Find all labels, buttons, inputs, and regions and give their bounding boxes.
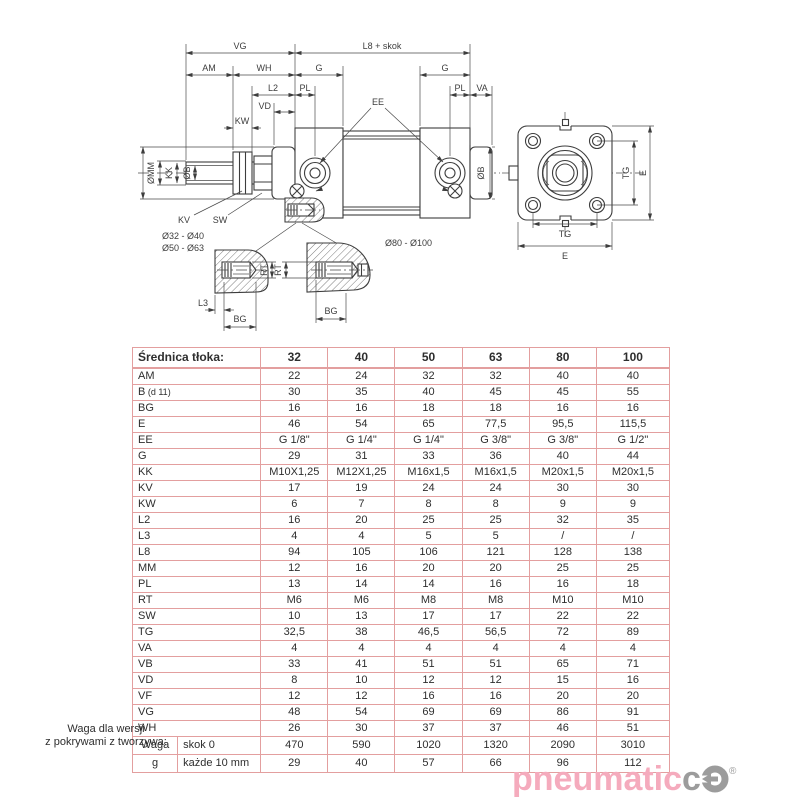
value-cell: M12X1,25 bbox=[328, 465, 395, 481]
value-cell: 46,5 bbox=[395, 625, 462, 641]
dims-table-body: AM222432324040B (d 11)303540454555BG1616… bbox=[133, 368, 670, 773]
row-label: G bbox=[133, 449, 261, 465]
table-row: VD81012121516 bbox=[133, 673, 670, 689]
value-cell: 6 bbox=[261, 497, 328, 513]
value-cell: M16x1,5 bbox=[395, 465, 462, 481]
dim-kw: KW bbox=[235, 116, 250, 126]
row-label: VG bbox=[133, 705, 261, 721]
value-cell: 89 bbox=[596, 625, 669, 641]
pneumatico-logo: pneumaticc® bbox=[512, 760, 792, 798]
dim-pl-front: PL bbox=[299, 83, 310, 93]
value-cell: 54 bbox=[328, 705, 395, 721]
dim-bg-small: BG bbox=[233, 314, 246, 324]
value-cell: 12 bbox=[261, 561, 328, 577]
value-cell: 1320 bbox=[462, 737, 529, 755]
logo-text-gray: c bbox=[682, 760, 701, 798]
datasheet-page: VG L8 + skok AM WH G G L2 PL PL VA VD KW… bbox=[0, 0, 800, 800]
value-cell: 15 bbox=[529, 673, 596, 689]
dim-ee: EE bbox=[372, 97, 384, 107]
value-cell: / bbox=[529, 529, 596, 545]
value-cell: 57 bbox=[395, 755, 462, 773]
value-cell: 13 bbox=[328, 609, 395, 625]
value-cell: 17 bbox=[395, 609, 462, 625]
value-cell: G 1/8" bbox=[261, 433, 328, 449]
value-cell: G 3/8" bbox=[462, 433, 529, 449]
value-cell: M8 bbox=[395, 593, 462, 609]
dim-l2: L2 bbox=[268, 83, 278, 93]
value-cell: 9 bbox=[596, 497, 669, 513]
value-cell: 9 bbox=[529, 497, 596, 513]
value-cell: 10 bbox=[328, 673, 395, 689]
value-cell: 40 bbox=[529, 368, 596, 385]
weight-sub-label: skok 0 bbox=[178, 737, 261, 755]
dim-tg-horizontal: TG bbox=[559, 229, 572, 239]
row-label: RT bbox=[133, 593, 261, 609]
cushion-screw-rear bbox=[448, 184, 462, 198]
value-cell: 16 bbox=[328, 561, 395, 577]
value-cell: 25 bbox=[395, 513, 462, 529]
value-cell: 48 bbox=[261, 705, 328, 721]
dim-tg-vertical: TG bbox=[621, 167, 631, 180]
value-cell: 13 bbox=[261, 577, 328, 593]
value-cell: 65 bbox=[395, 417, 462, 433]
value-cell: 30 bbox=[261, 385, 328, 401]
weight-sub-label: każde 10 mm bbox=[178, 755, 261, 773]
value-cell: 5 bbox=[462, 529, 529, 545]
value-cell: 7 bbox=[328, 497, 395, 513]
technical-drawing: VG L8 + skok AM WH G G L2 PL PL VA VD KW… bbox=[0, 0, 800, 345]
dim-vg: VG bbox=[233, 41, 246, 51]
value-cell: 138 bbox=[596, 545, 669, 561]
value-cell: 4 bbox=[261, 529, 328, 545]
detail-range-large: Ø80 - Ø100 bbox=[385, 238, 432, 248]
dim-am: AM bbox=[202, 63, 216, 73]
value-cell: M8 bbox=[462, 593, 529, 609]
value-cell: 10 bbox=[261, 609, 328, 625]
dim-dia-b-front: ØB bbox=[182, 166, 192, 179]
value-cell: 20 bbox=[529, 689, 596, 705]
dim-e-horizontal: E bbox=[562, 251, 568, 261]
table-row: TG32,53846,556,57289 bbox=[133, 625, 670, 641]
value-cell: 33 bbox=[261, 657, 328, 673]
value-cell: M6 bbox=[328, 593, 395, 609]
value-cell: 46 bbox=[529, 721, 596, 737]
dim-g-front: G bbox=[315, 63, 322, 73]
value-cell: M20x1,5 bbox=[596, 465, 669, 481]
table-row: EEG 1/8"G 1/4"G 1/4"G 3/8"G 3/8"G 1/2" bbox=[133, 433, 670, 449]
cushion-screw-front bbox=[290, 184, 304, 198]
value-cell: 40 bbox=[395, 385, 462, 401]
weight-caption: Waga dla wersji z pokrywami z tworzywa: bbox=[28, 723, 184, 749]
value-cell: 1020 bbox=[395, 737, 462, 755]
dim-g-rear: G bbox=[441, 63, 448, 73]
value-cell: 16 bbox=[462, 689, 529, 705]
value-cell: 5 bbox=[395, 529, 462, 545]
table-row: VG485469698691 bbox=[133, 705, 670, 721]
table-row: KW678899 bbox=[133, 497, 670, 513]
value-cell: M16x1,5 bbox=[462, 465, 529, 481]
value-cell: 45 bbox=[462, 385, 529, 401]
dim-kv: KV bbox=[178, 215, 190, 225]
value-cell: 51 bbox=[462, 657, 529, 673]
column-header: 32 bbox=[261, 348, 328, 369]
table-row: KKM10X1,25M12X1,25M16x1,5M16x1,5M20x1,5M… bbox=[133, 465, 670, 481]
row-label: MM bbox=[133, 561, 261, 577]
value-cell: 32 bbox=[462, 368, 529, 385]
value-cell: 8 bbox=[462, 497, 529, 513]
table-row: VF121216162020 bbox=[133, 689, 670, 705]
value-cell: 30 bbox=[596, 481, 669, 497]
value-cell: 29 bbox=[261, 755, 328, 773]
table-row: PL131414161618 bbox=[133, 577, 670, 593]
value-cell: 4 bbox=[328, 529, 395, 545]
value-cell: 36 bbox=[462, 449, 529, 465]
value-cell: M10X1,25 bbox=[261, 465, 328, 481]
value-cell: 4 bbox=[395, 641, 462, 657]
table-row: B (d 11)303540454555 bbox=[133, 385, 670, 401]
value-cell: 95,5 bbox=[529, 417, 596, 433]
logo-rotate-o-icon bbox=[701, 765, 729, 793]
value-cell: 22 bbox=[529, 609, 596, 625]
value-cell: 470 bbox=[261, 737, 328, 755]
value-cell: 40 bbox=[596, 368, 669, 385]
value-cell: 51 bbox=[395, 657, 462, 673]
value-cell: 24 bbox=[395, 481, 462, 497]
registered-mark: ® bbox=[729, 766, 736, 777]
value-cell: 14 bbox=[328, 577, 395, 593]
value-cell: 30 bbox=[328, 721, 395, 737]
value-cell: 12 bbox=[395, 673, 462, 689]
value-cell: 38 bbox=[328, 625, 395, 641]
value-cell: M6 bbox=[261, 593, 328, 609]
value-cell: 12 bbox=[462, 673, 529, 689]
plug-section bbox=[285, 198, 324, 222]
dim-dia-mm: ØMM bbox=[146, 162, 156, 184]
dim-kk: KK bbox=[164, 167, 174, 179]
value-cell: 65 bbox=[529, 657, 596, 673]
column-header: 100 bbox=[596, 348, 669, 369]
value-cell: 40 bbox=[328, 755, 395, 773]
table-row: G293133364044 bbox=[133, 449, 670, 465]
value-cell: / bbox=[596, 529, 669, 545]
dim-bg-large: BG bbox=[324, 306, 337, 316]
row-label: L2 bbox=[133, 513, 261, 529]
value-cell: 16 bbox=[462, 577, 529, 593]
value-cell: 37 bbox=[462, 721, 529, 737]
dim-dia-b-rear: ØB bbox=[476, 166, 486, 179]
value-cell: 32 bbox=[529, 513, 596, 529]
table-row: VB334151516571 bbox=[133, 657, 670, 673]
value-cell: 41 bbox=[328, 657, 395, 673]
dim-e-vertical: E bbox=[638, 170, 648, 176]
value-cell: 128 bbox=[529, 545, 596, 561]
value-cell: 24 bbox=[462, 481, 529, 497]
value-cell: 69 bbox=[395, 705, 462, 721]
table-row: L34455// bbox=[133, 529, 670, 545]
value-cell: 4 bbox=[462, 641, 529, 657]
value-cell: 25 bbox=[462, 513, 529, 529]
row-label: B (d 11) bbox=[133, 385, 261, 401]
value-cell: 94 bbox=[261, 545, 328, 561]
row-label: AM bbox=[133, 368, 261, 385]
value-cell: 105 bbox=[328, 545, 395, 561]
value-cell: 54 bbox=[328, 417, 395, 433]
cylinder-end-view: TG E TG E bbox=[502, 112, 654, 261]
value-cell: 26 bbox=[261, 721, 328, 737]
value-cell: 55 bbox=[596, 385, 669, 401]
row-label: E bbox=[133, 417, 261, 433]
table-row: L894105106121128138 bbox=[133, 545, 670, 561]
value-cell: 4 bbox=[261, 641, 328, 657]
column-header: 63 bbox=[462, 348, 529, 369]
value-cell: 16 bbox=[596, 401, 669, 417]
value-cell: 32,5 bbox=[261, 625, 328, 641]
dimensions-table: Średnica tłoka: 32 40 50 63 80 100 AM222… bbox=[132, 347, 670, 773]
value-cell: 18 bbox=[395, 401, 462, 417]
detail-view-large: Ø80 - Ø100 RT BG bbox=[273, 238, 432, 323]
value-cell: 18 bbox=[596, 577, 669, 593]
value-cell: 4 bbox=[596, 641, 669, 657]
value-cell: G 1/4" bbox=[328, 433, 395, 449]
value-cell: 19 bbox=[328, 481, 395, 497]
dim-l3: L3 bbox=[198, 298, 208, 308]
table-row: BG161618181616 bbox=[133, 401, 670, 417]
value-cell: 37 bbox=[395, 721, 462, 737]
value-cell: 16 bbox=[261, 401, 328, 417]
value-cell: 35 bbox=[596, 513, 669, 529]
value-cell: 16 bbox=[529, 401, 596, 417]
value-cell: 3010 bbox=[596, 737, 669, 755]
value-cell: G 3/8" bbox=[529, 433, 596, 449]
value-cell: 86 bbox=[529, 705, 596, 721]
table-header-row: Średnica tłoka: 32 40 50 63 80 100 bbox=[133, 348, 670, 369]
row-label: L8 bbox=[133, 545, 261, 561]
table-row: L2162025253235 bbox=[133, 513, 670, 529]
detail-range-small-1: Ø32 - Ø40 bbox=[162, 231, 204, 241]
value-cell: 72 bbox=[529, 625, 596, 641]
value-cell: 33 bbox=[395, 449, 462, 465]
logo-text-pink: pneumatic bbox=[512, 760, 682, 798]
value-cell: 121 bbox=[462, 545, 529, 561]
value-cell: 4 bbox=[529, 641, 596, 657]
dim-rt-large: RT bbox=[273, 264, 283, 276]
value-cell: 20 bbox=[328, 513, 395, 529]
value-cell: 16 bbox=[395, 689, 462, 705]
value-cell: 45 bbox=[529, 385, 596, 401]
row-label: VD bbox=[133, 673, 261, 689]
value-cell: G 1/4" bbox=[395, 433, 462, 449]
value-cell: 46 bbox=[261, 417, 328, 433]
dim-va: VA bbox=[476, 83, 487, 93]
value-cell: 22 bbox=[596, 609, 669, 625]
row-label: VB bbox=[133, 657, 261, 673]
value-cell: 106 bbox=[395, 545, 462, 561]
row-label: KK bbox=[133, 465, 261, 481]
dim-pl-rear: PL bbox=[454, 83, 465, 93]
row-label: BG bbox=[133, 401, 261, 417]
table-row: SW101317172222 bbox=[133, 609, 670, 625]
value-cell: 71 bbox=[596, 657, 669, 673]
row-label: PL bbox=[133, 577, 261, 593]
value-cell: M10 bbox=[596, 593, 669, 609]
dim-wh: WH bbox=[257, 63, 272, 73]
value-cell: 91 bbox=[596, 705, 669, 721]
value-cell: 17 bbox=[462, 609, 529, 625]
row-label: VF bbox=[133, 689, 261, 705]
value-cell: 20 bbox=[596, 689, 669, 705]
value-cell: 12 bbox=[328, 689, 395, 705]
detail-range-small-2: Ø50 - Ø63 bbox=[162, 243, 204, 253]
table-row: WH263037374651 bbox=[133, 721, 670, 737]
value-cell: M20x1,5 bbox=[529, 465, 596, 481]
dim-l8-skok: L8 + skok bbox=[363, 41, 402, 51]
table-row: RTM6M6M8M8M10M10 bbox=[133, 593, 670, 609]
value-cell: 8 bbox=[395, 497, 462, 513]
table-header-label: Średnica tłoka: bbox=[133, 348, 261, 369]
row-label: KV bbox=[133, 481, 261, 497]
dim-rt-small: RT bbox=[259, 264, 269, 276]
weight-caption-line1: Waga dla wersji bbox=[28, 723, 184, 736]
value-cell: 31 bbox=[328, 449, 395, 465]
value-cell: 16 bbox=[529, 577, 596, 593]
value-cell: 115,5 bbox=[596, 417, 669, 433]
value-cell: 590 bbox=[328, 737, 395, 755]
value-cell: 29 bbox=[261, 449, 328, 465]
row-label: SW bbox=[133, 609, 261, 625]
value-cell: 17 bbox=[261, 481, 328, 497]
value-cell: 16 bbox=[261, 513, 328, 529]
value-cell: 77,5 bbox=[462, 417, 529, 433]
value-cell: 40 bbox=[529, 449, 596, 465]
row-label: VA bbox=[133, 641, 261, 657]
weight-row: Wagaskok 04705901020132020903010 bbox=[133, 737, 670, 755]
column-header: 80 bbox=[529, 348, 596, 369]
value-cell: 8 bbox=[261, 673, 328, 689]
value-cell: 20 bbox=[462, 561, 529, 577]
value-cell: 24 bbox=[328, 368, 395, 385]
table-row: KV171924243030 bbox=[133, 481, 670, 497]
value-cell: 4 bbox=[328, 641, 395, 657]
value-cell: G 1/2" bbox=[596, 433, 669, 449]
table-row: VA444444 bbox=[133, 641, 670, 657]
value-cell: 16 bbox=[596, 673, 669, 689]
value-cell: 51 bbox=[596, 721, 669, 737]
weight-group-label: g bbox=[133, 755, 178, 773]
value-cell: 32 bbox=[395, 368, 462, 385]
value-cell: 18 bbox=[462, 401, 529, 417]
value-cell: 56,5 bbox=[462, 625, 529, 641]
value-cell: 44 bbox=[596, 449, 669, 465]
value-cell: 20 bbox=[395, 561, 462, 577]
value-cell: 14 bbox=[395, 577, 462, 593]
value-cell: 69 bbox=[462, 705, 529, 721]
dim-vd: VD bbox=[258, 101, 271, 111]
column-header: 50 bbox=[395, 348, 462, 369]
row-label: EE bbox=[133, 433, 261, 449]
value-cell: M10 bbox=[529, 593, 596, 609]
cylinder-side-view: VG L8 + skok AM WH G G L2 PL PL VA VD KW… bbox=[138, 41, 500, 251]
value-cell: 16 bbox=[328, 401, 395, 417]
value-cell: 35 bbox=[328, 385, 395, 401]
row-label: L3 bbox=[133, 529, 261, 545]
row-label: TG bbox=[133, 625, 261, 641]
row-label: KW bbox=[133, 497, 261, 513]
column-header: 40 bbox=[328, 348, 395, 369]
value-cell: 22 bbox=[261, 368, 328, 385]
table-row: MM121620202525 bbox=[133, 561, 670, 577]
value-cell: 25 bbox=[596, 561, 669, 577]
table-row: AM222432324040 bbox=[133, 368, 670, 385]
value-cell: 12 bbox=[261, 689, 328, 705]
value-cell: 30 bbox=[529, 481, 596, 497]
detail-view-small: Ø32 - Ø40 Ø50 - Ø63 RT L3 BG bbox=[162, 231, 276, 331]
value-cell: 25 bbox=[529, 561, 596, 577]
dim-sw: SW bbox=[213, 215, 228, 225]
table-row: E46546577,595,5115,5 bbox=[133, 417, 670, 433]
weight-caption-line2: z pokrywami z tworzywa: bbox=[28, 736, 184, 749]
value-cell: 2090 bbox=[529, 737, 596, 755]
